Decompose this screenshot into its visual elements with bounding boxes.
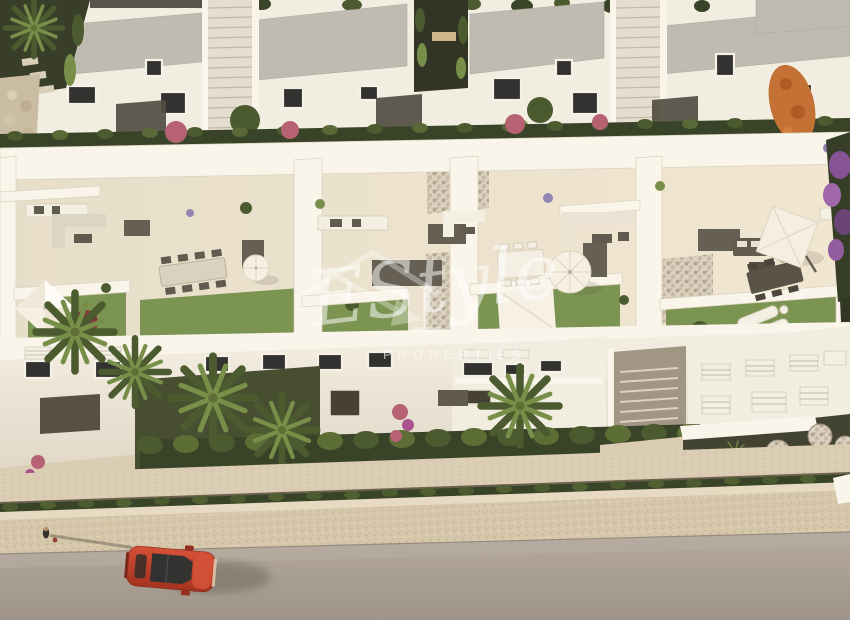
light-overlay bbox=[0, 0, 850, 620]
aerial-render: EStyle PROPERTIES bbox=[0, 0, 850, 620]
render-canvas bbox=[0, 0, 850, 620]
